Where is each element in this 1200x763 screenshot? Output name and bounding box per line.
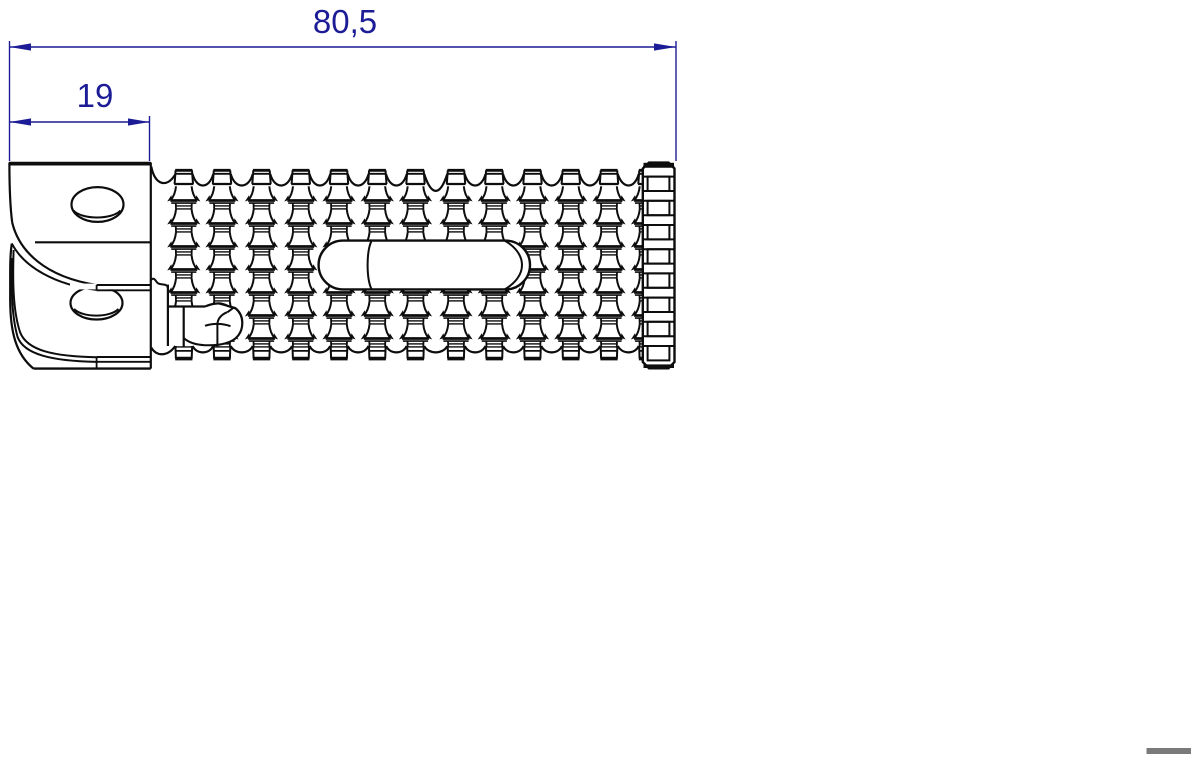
svg-text:19: 19 (77, 77, 114, 114)
svg-text:80,5: 80,5 (313, 3, 377, 40)
